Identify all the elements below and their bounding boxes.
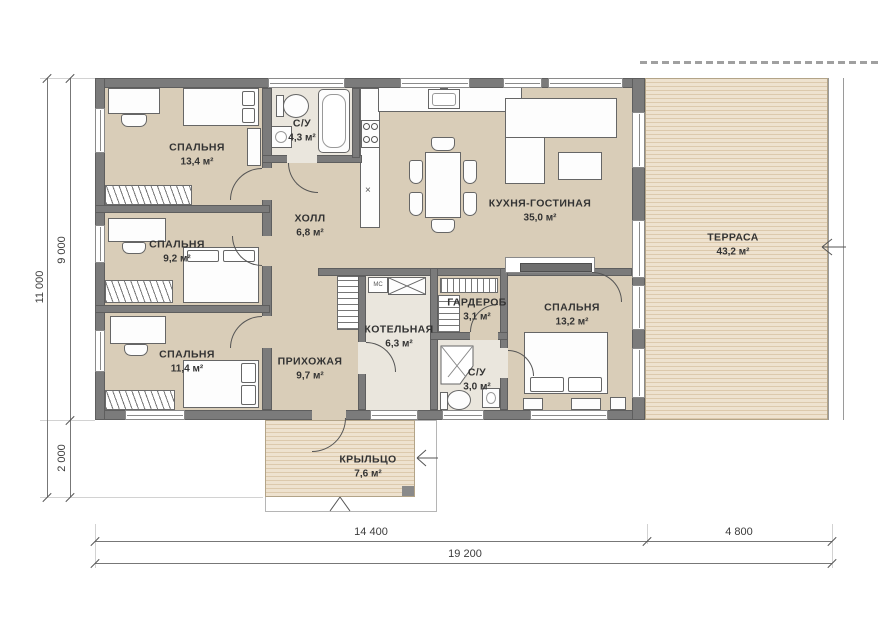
window (125, 410, 185, 420)
wardrobe-closet (105, 390, 175, 410)
room-label-entry-hall: ПРИХОЖАЯ 9,7 м² (278, 356, 343, 383)
window (530, 410, 608, 420)
room-name: ГАРДЕРОБ (447, 297, 506, 311)
room-area: 4,3 м² (288, 131, 315, 144)
room-name: ТЕРРАСА (707, 232, 759, 246)
chair (463, 160, 477, 184)
chair (409, 160, 423, 184)
room-area: 9,7 м² (278, 369, 343, 382)
pillow (242, 108, 255, 123)
room-area: 3,0 м² (463, 380, 490, 393)
room-label-bathroom-1: С/У 4,3 м² (288, 118, 315, 145)
sliding-door (520, 263, 592, 272)
door-opening (287, 155, 317, 163)
wardrobe-closet (105, 185, 192, 205)
sink-mark: × (365, 186, 371, 196)
room-label-wardrobe-room: ГАРДЕРОБ 3,1 м² (447, 297, 506, 324)
pillow (241, 385, 256, 405)
roof-overhang-line (640, 61, 882, 64)
room-area: 35,0 м² (489, 211, 591, 224)
dimension-label-left-house: 9 000 (56, 236, 68, 264)
sofa (505, 137, 545, 184)
room-label-porch: КРЫЛЬЦО 7,6 м² (339, 454, 396, 481)
window (548, 78, 623, 88)
room-area: 3,1 м² (447, 310, 506, 323)
window (632, 348, 645, 398)
chair (409, 192, 423, 216)
room-area: 9,2 м² (149, 252, 205, 265)
room-label-hall: ХОЛЛ 6,8 м² (295, 213, 326, 240)
window (503, 78, 542, 88)
porch-step-arrow-icon (327, 495, 353, 518)
room-name: КРЫЛЬЦО (339, 454, 396, 468)
room-name: С/У (288, 118, 315, 132)
room-name: КУХНЯ-ГОСТИНАЯ (489, 198, 591, 212)
room-area: 43,2 м² (707, 245, 759, 258)
room-name: КОТЕЛЬНАЯ (364, 324, 433, 338)
terrace-door (632, 112, 645, 168)
room-name: СПАЛЬНЯ (544, 302, 600, 316)
dresser (247, 128, 261, 166)
window (400, 78, 470, 88)
chair (463, 192, 477, 216)
dimension-label-left-total: 11 000 (34, 271, 46, 304)
coffee-table (558, 152, 602, 180)
room-area: 6,8 м² (295, 226, 326, 239)
terrace-entry-arrow-icon (816, 236, 846, 263)
room-name: СПАЛЬНЯ (149, 239, 205, 253)
dimension-line (70, 78, 71, 497)
chair (124, 344, 148, 356)
burner-icon (363, 123, 370, 130)
cross-icon (389, 278, 425, 294)
door-opening (262, 168, 272, 200)
room-label-terrace: ТЕРРАСА 43,2 м² (707, 232, 759, 259)
washbasin-bowl (275, 131, 287, 143)
dimension-line (47, 78, 48, 497)
wall (95, 205, 270, 213)
pillow (530, 377, 564, 392)
pillow (241, 363, 256, 383)
room-label-bedroom-4: СПАЛЬНЯ 11,4 м² (159, 349, 215, 376)
chair (122, 242, 146, 254)
nightstand (610, 397, 626, 410)
room-name: ПРИХОЖАЯ (278, 356, 343, 370)
room-area: 11,4 м² (159, 362, 215, 375)
room-area: 13,4 м² (169, 155, 225, 168)
entry-closet (337, 276, 360, 330)
room-label-bedroom-1: СПАЛЬНЯ 13,4 м² (169, 142, 225, 169)
window (442, 410, 484, 420)
door-opening (500, 348, 508, 378)
floor-plan: × МС (0, 0, 882, 624)
window (95, 108, 105, 153)
dimension-label-left-porch: 2 000 (56, 444, 68, 472)
desk (110, 316, 166, 344)
bench (523, 398, 543, 410)
door-opening (262, 316, 272, 348)
storage-box (388, 277, 426, 295)
door-opening (262, 236, 272, 266)
dimension-line (95, 541, 832, 542)
bench (571, 398, 601, 410)
room-name: СПАЛЬНЯ (169, 142, 225, 156)
wardrobe-rail (440, 278, 498, 293)
window (632, 285, 645, 330)
porch-post (402, 486, 414, 496)
room-label-boiler-room: КОТЕЛЬНАЯ 6,3 м² (364, 324, 433, 351)
window (95, 225, 105, 263)
chair (431, 219, 455, 233)
room-area: 6,3 м² (364, 337, 433, 350)
porch-entry-arrow-icon (412, 447, 438, 474)
sink-bowl (432, 93, 456, 106)
dimension-label-bottom-terrace: 4 800 (725, 526, 753, 538)
burner-icon (371, 123, 378, 130)
dimension-label-bottom-house: 14 400 (354, 526, 388, 538)
door-opening (470, 332, 498, 340)
room-area: 7,6 м² (339, 467, 396, 480)
washing-machine-label: МС (373, 282, 382, 288)
pillow (568, 377, 602, 392)
room-name: С/У (463, 367, 490, 381)
pillow (242, 91, 255, 106)
sofa (505, 98, 617, 138)
chair (121, 114, 147, 127)
wall (95, 305, 270, 313)
dining-table (425, 152, 461, 218)
room-name: ХОЛЛ (295, 213, 326, 227)
extension-line (40, 497, 263, 498)
burner-icon (371, 136, 378, 143)
room-label-bathroom-2: С/У 3,0 м² (463, 367, 490, 394)
room-area: 13,2 м² (544, 315, 600, 328)
window (370, 410, 418, 420)
dimension-label-bottom-total: 19 200 (448, 548, 482, 560)
washing-machine: МС (368, 277, 388, 293)
room-label-bedroom-2: СПАЛЬНЯ 9,2 м² (149, 239, 205, 266)
window (268, 78, 345, 88)
washbasin-bowl (486, 392, 496, 404)
bathtub-basin (322, 94, 346, 148)
burner-icon (363, 136, 370, 143)
desk (108, 88, 160, 114)
room-label-bedroom-3: СПАЛЬНЯ 13,2 м² (544, 302, 600, 329)
dimension-line (95, 563, 832, 564)
window (95, 330, 105, 372)
chair (431, 137, 455, 151)
wall (352, 88, 360, 158)
room-label-kitchen-living: КУХНЯ-ГОСТИНАЯ 35,0 м² (489, 198, 591, 225)
kitchen-counter (360, 88, 380, 228)
toilet (283, 94, 309, 118)
wardrobe-closet (105, 280, 173, 303)
terrace-door (632, 220, 645, 278)
room-name: СПАЛЬНЯ (159, 349, 215, 363)
